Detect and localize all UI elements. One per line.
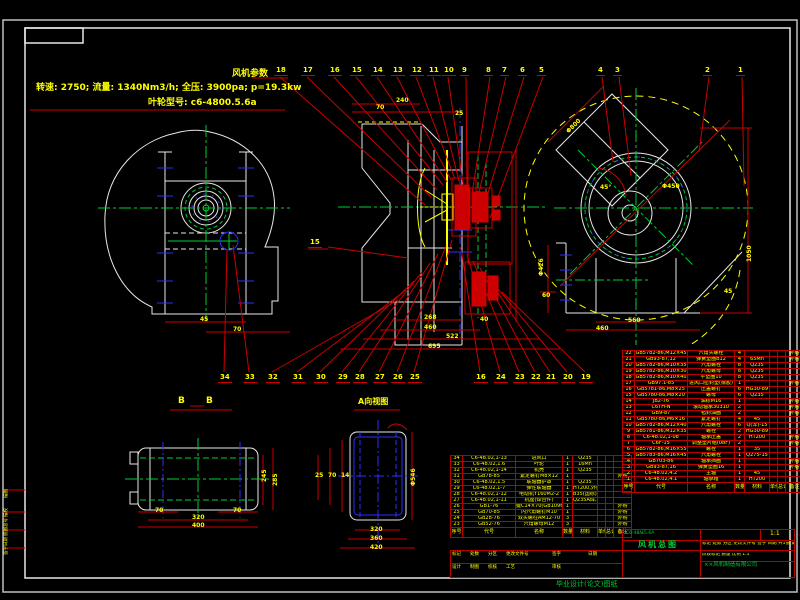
part-callout-bottom: 21 xyxy=(544,373,558,383)
bom-cell: GB5781-86,M8×25 xyxy=(635,387,688,393)
part-callout-top: 11 xyxy=(427,66,441,76)
bottom-note: 毕业设计(论文)图纸 xyxy=(556,581,617,588)
bom-cell: B35(国标)-4 xyxy=(573,492,598,498)
dim-label: 25 xyxy=(455,110,463,117)
dim-label: 320 xyxy=(192,514,205,521)
sig-header-cell: 签字 xyxy=(552,553,561,558)
part-callout-bottom: 16 xyxy=(474,373,488,383)
bom-cell: GB5782-86,M10×30 xyxy=(635,369,688,375)
part-callout-top: 1 xyxy=(736,66,745,76)
part-callout-top: 17 xyxy=(301,66,315,76)
dim-label: 560 xyxy=(628,317,641,324)
part-callout-bottom: 33 xyxy=(243,373,257,383)
part-callout-top: 8 xyxy=(484,66,493,76)
part-callout-top: 4 xyxy=(596,66,605,76)
dim-label: 14 xyxy=(341,472,349,479)
bom-header-cell: 材料 xyxy=(745,483,770,493)
part-callout-bottom: 27 xyxy=(373,373,387,383)
bom-header-cell: 名称 xyxy=(688,483,735,493)
dim-label: 400 xyxy=(192,522,205,529)
dim-label: 45 xyxy=(724,288,732,295)
part-callout-top: 5 xyxy=(537,66,546,76)
title-block-stage-row: 阶段标记 质量 比例 1:1 xyxy=(702,553,794,558)
sig-header-cell: 更改文件号 xyxy=(506,553,529,558)
part-callout-bottom: 25 xyxy=(408,373,422,383)
dim-label: 320 xyxy=(370,526,383,533)
bom-cell: GB5782-86,M10×40 xyxy=(635,375,688,381)
dim-label: 70 xyxy=(233,507,241,514)
bom-header-cell: 单件 xyxy=(770,483,778,493)
bom-header-cell: 备注 xyxy=(786,483,800,493)
dim-label: 420 xyxy=(370,544,383,551)
bom-header-cell: 序号 xyxy=(451,528,463,538)
part-callout-bottom: 28 xyxy=(353,373,367,383)
bom-cell: 内六角螺钉M10 xyxy=(516,510,563,516)
section-label-a-view: A向视图 xyxy=(358,398,388,406)
bom-cell: GB5780-86,M6×16 xyxy=(635,417,688,423)
sig-label-cell: 制图 xyxy=(470,566,479,571)
bom-cell: 滚动轴承30310 xyxy=(688,405,735,411)
bom-cell: 双头螺柱AM12-70 xyxy=(516,516,563,522)
rev-strip-label: 底图总号 xyxy=(5,518,10,536)
dim-label: 285 xyxy=(272,473,279,486)
part-callout-bottom: 32 xyxy=(266,373,280,383)
bom-cell: GB5782-86,M12×45 xyxy=(635,351,688,357)
param-title: 风机参数 xyxy=(232,66,268,79)
part-callout-15: 15 xyxy=(308,238,322,248)
section-label-bb-left: B xyxy=(178,397,185,406)
dim-label: 45° xyxy=(600,184,611,191)
dim-label: Φ546 xyxy=(410,468,417,486)
part-callout-top: 16 xyxy=(328,66,342,76)
bom-cell: Q275-15 xyxy=(745,453,770,459)
bom-header-cell: 数量 xyxy=(735,483,745,493)
dim-label: 460 xyxy=(424,324,437,331)
rev-strip-label: 描图 xyxy=(5,489,10,498)
title-block-company: ××风机制造有限公司 xyxy=(704,563,757,569)
part-callout-top: 9 xyxy=(460,66,469,76)
drawing-title: 风机总图 xyxy=(638,541,678,549)
dim-label: Φ426 xyxy=(538,258,545,276)
sig-header-cell: 分区 xyxy=(488,553,497,558)
sig-header-cell: 标记 xyxy=(452,553,461,558)
bom-cell: HG30-89 xyxy=(745,387,770,393)
title-block-scale: 1:1 xyxy=(770,531,780,537)
bom-cell: Q235A焊,3-4 xyxy=(573,498,598,504)
bom-cell: GB5782-86,M12×40 xyxy=(635,423,688,429)
section-label-bb-right: B xyxy=(206,397,213,406)
dim-label: 1050 xyxy=(746,245,753,262)
part-callout-bottom: 22 xyxy=(529,373,543,383)
bom-cell: GB5781-86,M12×35 xyxy=(635,429,688,435)
bom-header-cell: 数量 xyxy=(563,528,573,538)
bom-header-cell: 单件 xyxy=(598,528,606,538)
param-line1: 转速: 2750; 流量: 1340Nm3/h; 全压: 3900pa; p=1… xyxy=(36,80,301,93)
part-callout-top: 14 xyxy=(371,66,385,76)
bom-cell: 调整垫片组(08F) xyxy=(688,441,735,447)
bom-cell: Q(淬)-15 xyxy=(745,423,770,429)
bom-header-cell: 代号 xyxy=(463,528,516,538)
bom-cell: HG30-89 xyxy=(745,429,770,435)
dim-label: 40 xyxy=(480,316,488,323)
bom-cell: GB5780-86,M8×20 xyxy=(635,393,688,399)
title-block-model: C6-48№5.6A xyxy=(626,532,654,537)
part-callout-top: 2 xyxy=(703,66,712,76)
sig-label-cell: 设计 xyxy=(452,566,461,571)
bom-cell: 电动机Y160M2-2 xyxy=(516,492,563,498)
part-callout-top: 13 xyxy=(391,66,405,76)
sig-label-cell: 校核 xyxy=(488,566,497,571)
bom-header-cell: 序号 xyxy=(623,483,635,493)
dim-label: 268 xyxy=(424,314,437,321)
dim-label: 70 xyxy=(328,472,336,479)
bom-cell: 紧定螺钉M8×12 xyxy=(516,474,563,480)
part-callout-bottom: 24 xyxy=(494,373,508,383)
part-callout-bottom: 26 xyxy=(391,373,405,383)
dim-label: 70 xyxy=(155,507,163,514)
bom-header-cell: 总计 xyxy=(778,483,786,493)
sig-label-cell: 工艺 xyxy=(506,566,515,571)
dim-label: 45 xyxy=(200,316,208,323)
bom-cell: GB5782-86,M10×35 xyxy=(635,363,688,369)
sig-label-cell: 审核 xyxy=(552,566,561,571)
part-callout-top: 18 xyxy=(274,66,288,76)
dim-label: 70 xyxy=(233,326,241,333)
sig-header-cell: 处数 xyxy=(470,553,479,558)
part-callout-top: 12 xyxy=(410,66,424,76)
bom-cell: GB5782-86,M16×55 xyxy=(635,447,688,453)
bom-header-cell: 总计 xyxy=(606,528,614,538)
bom-cell: GB5783-86,M16×45 xyxy=(635,453,688,459)
part-callout-bottom: 20 xyxy=(561,373,575,383)
bom-table-right: 22GB5782-86,M12×45六角头螺栓4外购21GB93-87,12弹簧… xyxy=(622,350,800,493)
bom-table-left: 34C6-48.02,1-13进风口1Q23533C6-48.02,1.6叶轮1… xyxy=(450,455,632,538)
cad-drawing-canvas[interactable]: 风机参数 转速: 2750; 流量: 1340Nm3/h; 全压: 3900pa… xyxy=(0,0,800,600)
rev-strip-label: 描校 xyxy=(5,508,10,517)
part-callout-bottom: 31 xyxy=(291,373,305,383)
dim-label: 522 xyxy=(446,333,459,340)
part-callout-bottom: 29 xyxy=(336,373,350,383)
part-callout-top: 7 xyxy=(500,66,509,76)
dim-label: 60 xyxy=(542,292,550,299)
part-callout-top: 15 xyxy=(350,66,364,76)
part-callout-bottom: 19 xyxy=(579,373,593,383)
dim-label: 360 xyxy=(370,535,383,542)
dim-label: 70 xyxy=(376,104,384,111)
dim-label: 240 xyxy=(396,97,409,104)
dim-label: Φ450 xyxy=(662,183,680,190)
param-line2: 叶轮型号: c6-4800.5.6a xyxy=(148,95,257,108)
part-callout-bottom: 30 xyxy=(314,373,328,383)
part-callout-top: 10 xyxy=(442,66,456,76)
dim-label: 695 xyxy=(428,343,441,350)
dim-label: 25 xyxy=(315,472,323,479)
bom-cell: 进风口密封垫(橡胶) xyxy=(688,381,735,387)
bom-header-cell: 材料 xyxy=(573,528,598,538)
dim-label: 460 xyxy=(596,325,609,332)
title-block-info-row: 标记 处数 分区 更改文件号 签字 日期 共1张 第1张 xyxy=(702,542,794,547)
part-callout-bottom: 23 xyxy=(513,373,527,383)
sig-header-cell: 日期 xyxy=(588,553,597,558)
bom-header-cell: 代号 xyxy=(635,483,688,493)
dim-label: 245 xyxy=(261,469,268,482)
part-callout-top: 3 xyxy=(613,66,622,76)
bom-header-cell: 名称 xyxy=(516,528,563,538)
bom-cell: 键C14×70(GB1096-79) xyxy=(516,504,563,510)
part-callout-top: 6 xyxy=(518,66,527,76)
part-callout-bottom: 34 xyxy=(218,373,232,383)
rev-strip-label: 签字日期 xyxy=(5,537,10,555)
bom-cell: HT200,外购-b xyxy=(573,486,598,492)
